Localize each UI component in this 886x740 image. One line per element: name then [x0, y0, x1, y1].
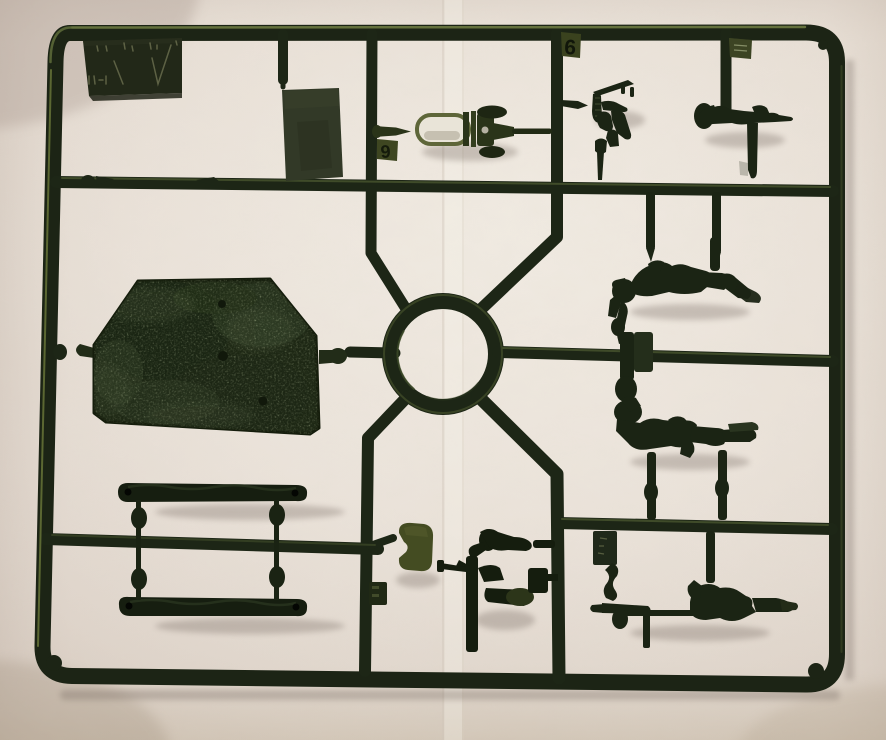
svg-text:6: 6 [564, 36, 577, 60]
svg-text:9: 9 [380, 141, 391, 162]
